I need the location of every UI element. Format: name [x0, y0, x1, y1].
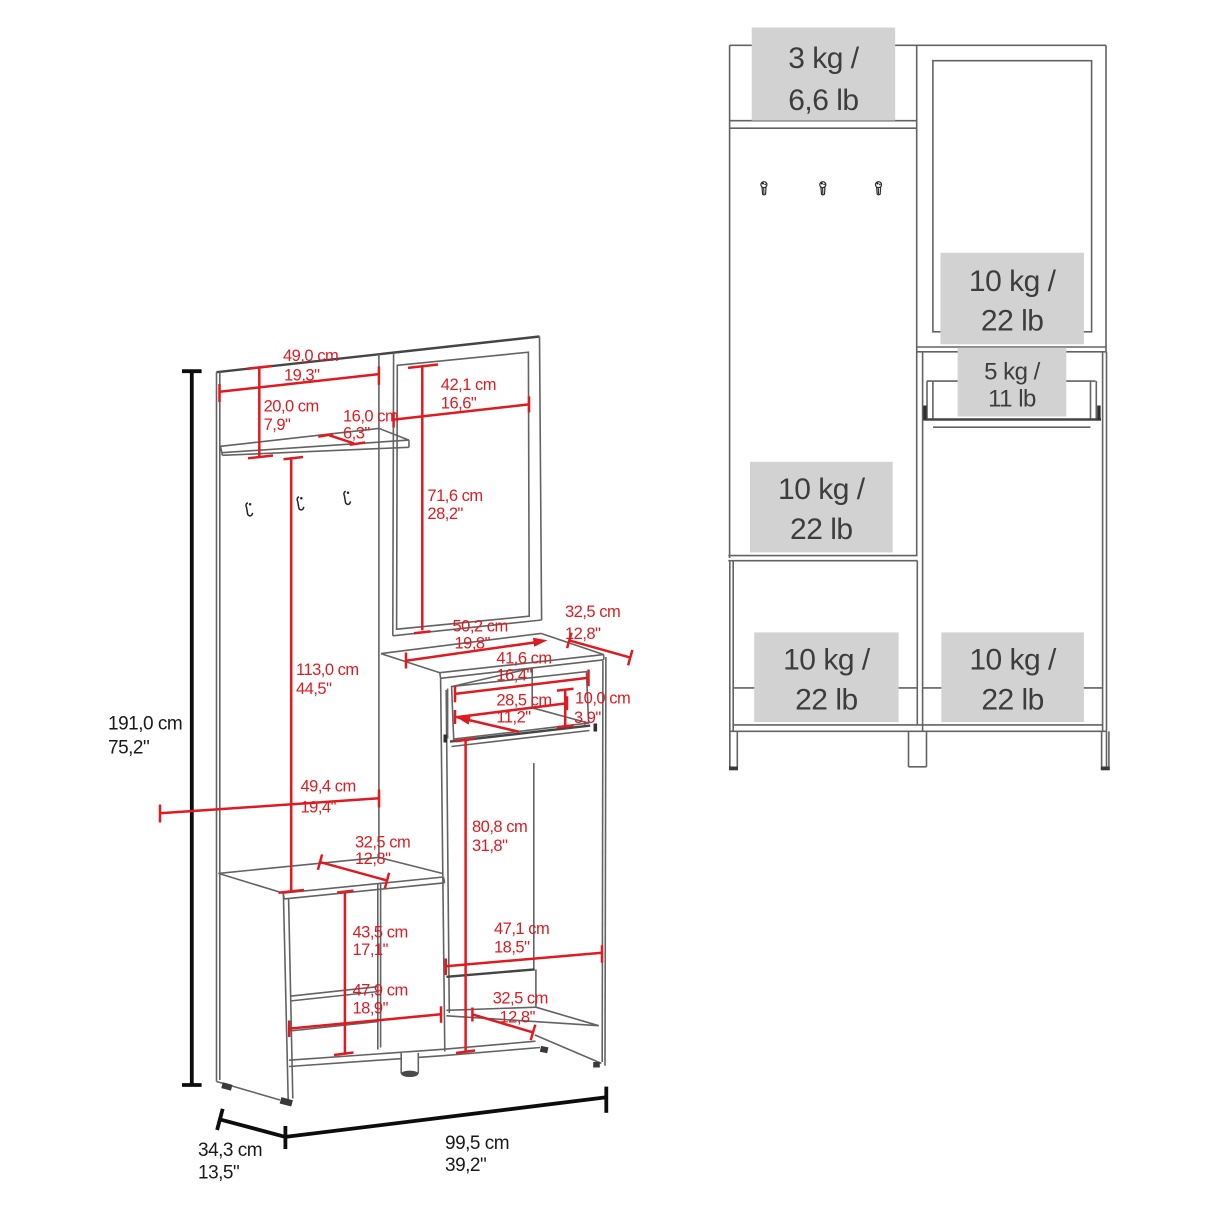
svg-text:47,9 cm: 47,9 cm	[353, 982, 408, 1000]
svg-text:19,4": 19,4"	[301, 799, 337, 817]
svg-text:11 lb: 11 lb	[988, 386, 1036, 413]
svg-text:10 kg /: 10 kg /	[783, 643, 871, 676]
svg-text:16,4": 16,4"	[496, 667, 532, 685]
svg-text:6,6 lb: 6,6 lb	[788, 84, 858, 117]
svg-text:17,1": 17,1"	[353, 941, 389, 959]
svg-text:191,0 cm: 191,0 cm	[108, 714, 182, 735]
svg-text:19,8": 19,8"	[455, 635, 491, 653]
svg-text:6,3": 6,3"	[343, 425, 370, 443]
svg-text:31,8": 31,8"	[472, 837, 508, 855]
svg-text:80,8 cm: 80,8 cm	[472, 818, 527, 836]
svg-text:43,5 cm: 43,5 cm	[353, 924, 408, 942]
svg-text:22 lb: 22 lb	[981, 305, 1044, 338]
svg-text:10 kg /: 10 kg /	[778, 473, 866, 506]
svg-text:41,6 cm: 41,6 cm	[496, 650, 551, 668]
svg-text:3,9": 3,9"	[574, 709, 601, 727]
svg-text:49,4 cm: 49,4 cm	[301, 778, 356, 796]
svg-text:34,3 cm: 34,3 cm	[198, 1140, 262, 1161]
svg-text:11,2": 11,2"	[496, 709, 531, 727]
svg-text:12,8": 12,8"	[355, 850, 391, 868]
svg-text:39,2": 39,2"	[445, 1155, 486, 1176]
svg-text:3 kg /: 3 kg /	[788, 42, 860, 75]
svg-text:20,0 cm: 20,0 cm	[264, 398, 319, 416]
svg-text:32,5 cm: 32,5 cm	[565, 603, 620, 621]
svg-text:42,1 cm: 42,1 cm	[441, 376, 496, 394]
svg-text:10,0 cm: 10,0 cm	[575, 690, 630, 708]
svg-text:99,5 cm: 99,5 cm	[445, 1133, 509, 1154]
svg-text:75,2": 75,2"	[108, 738, 149, 759]
svg-text:47,1 cm: 47,1 cm	[494, 920, 549, 938]
svg-text:13,5": 13,5"	[198, 1163, 239, 1184]
svg-text:7,9": 7,9"	[264, 416, 291, 434]
svg-text:44,5": 44,5"	[296, 680, 332, 698]
svg-text:49,0 cm: 49,0 cm	[283, 347, 338, 365]
svg-text:71,6 cm: 71,6 cm	[427, 487, 482, 505]
svg-text:22 lb: 22 lb	[795, 684, 858, 717]
svg-text:19,3": 19,3"	[284, 367, 320, 385]
svg-text:32,5 cm: 32,5 cm	[355, 834, 410, 852]
svg-text:50,2 cm: 50,2 cm	[453, 618, 508, 636]
svg-text:28,2": 28,2"	[427, 505, 463, 523]
svg-text:22 lb: 22 lb	[790, 513, 853, 546]
svg-text:5 kg /: 5 kg /	[984, 359, 1041, 386]
svg-text:113,0 cm: 113,0 cm	[296, 661, 359, 679]
svg-text:10 kg /: 10 kg /	[969, 643, 1057, 676]
svg-text:16,6": 16,6"	[441, 395, 477, 413]
svg-text:12,8": 12,8"	[500, 1009, 536, 1027]
svg-text:28,5 cm: 28,5 cm	[496, 692, 551, 710]
svg-text:22 lb: 22 lb	[981, 684, 1044, 717]
svg-text:16,0 cm: 16,0 cm	[343, 408, 398, 426]
svg-text:18,9": 18,9"	[353, 1000, 389, 1018]
svg-text:10 kg /: 10 kg /	[969, 265, 1057, 298]
svg-text:18,5": 18,5"	[494, 939, 530, 957]
svg-text:32,5 cm: 32,5 cm	[493, 990, 548, 1008]
svg-text:12,8": 12,8"	[565, 625, 601, 643]
